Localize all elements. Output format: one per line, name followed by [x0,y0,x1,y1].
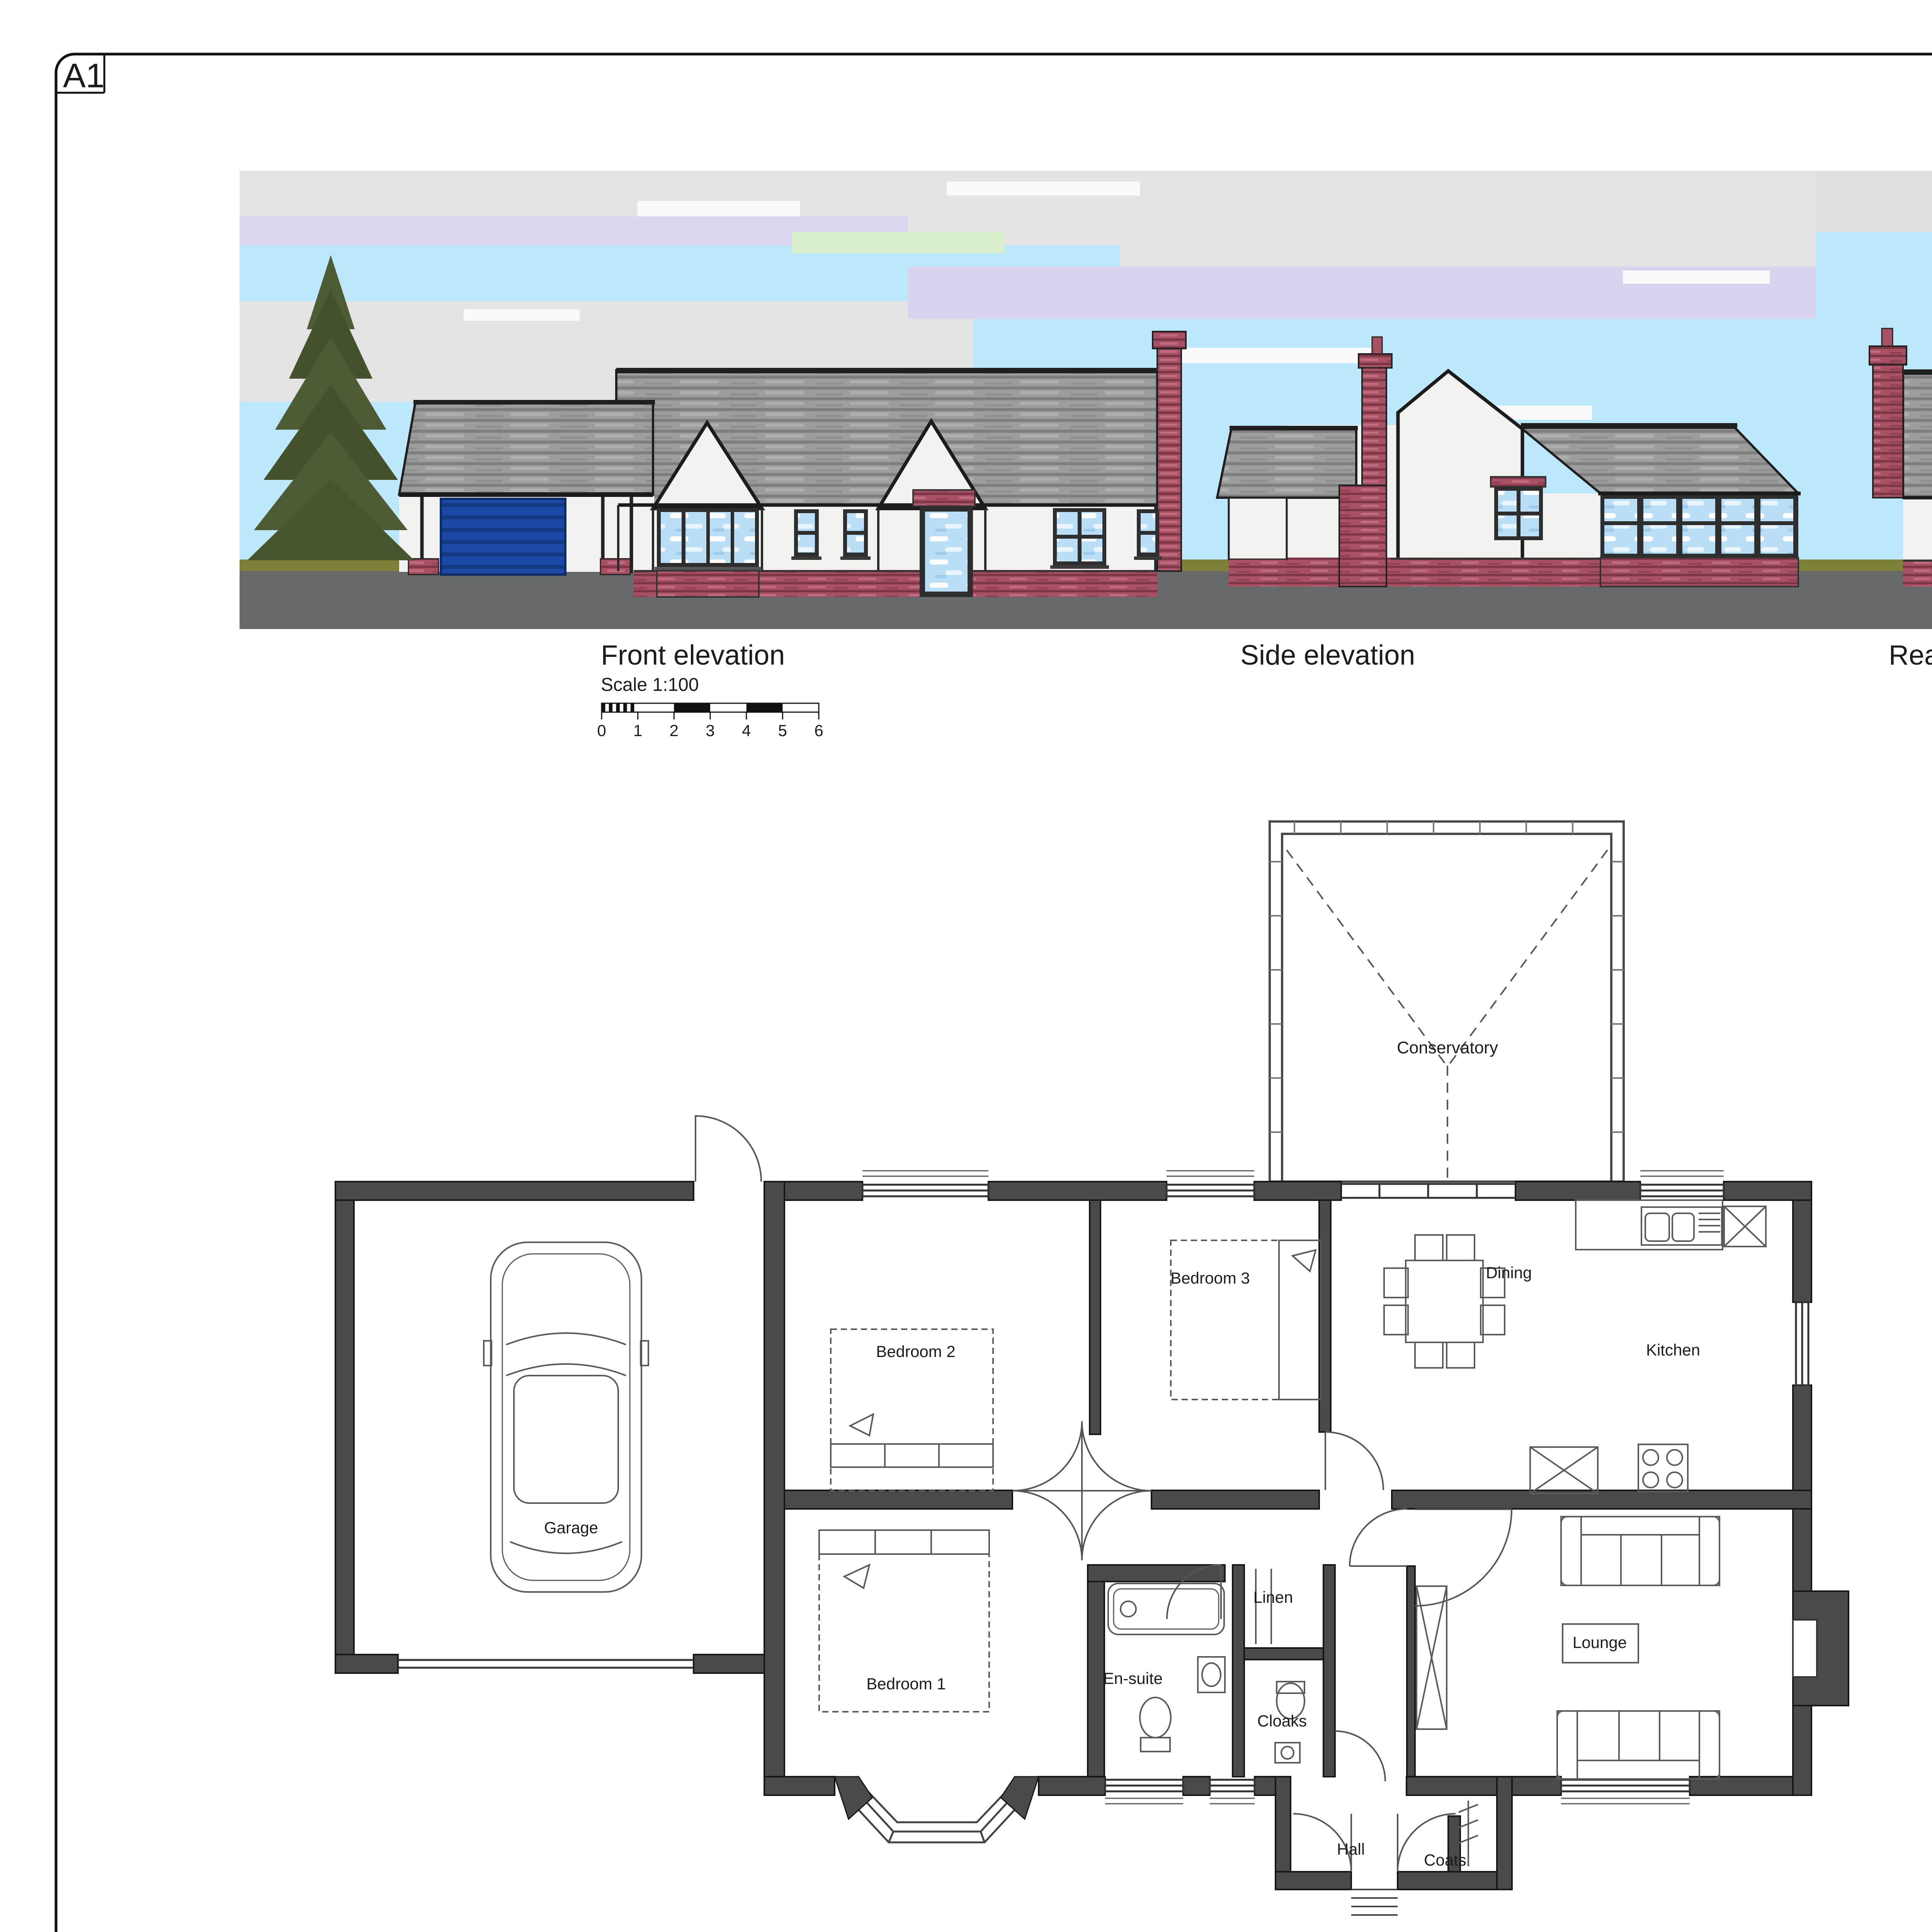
svg-text:Bedroom 2: Bedroom 2 [876,1342,955,1361]
svg-text:6: 6 [814,721,823,740]
svg-text:0: 0 [597,721,606,740]
svg-text:Front elevation: Front elevation [601,640,785,671]
svg-text:Scale 1:100: Scale 1:100 [601,675,699,695]
svg-text:Rear elevation: Rear elevation [1889,640,1932,671]
svg-text:Bedroom 3: Bedroom 3 [1170,1269,1250,1287]
svg-text:Conservatory: Conservatory [1397,1038,1498,1057]
svg-text:4: 4 [742,721,751,740]
svg-text:3: 3 [706,721,714,740]
svg-text:Cloaks: Cloaks [1257,1712,1307,1730]
svg-text:Bedroom 1: Bedroom 1 [866,1675,946,1693]
svg-text:Linen: Linen [1253,1588,1293,1606]
svg-text:1: 1 [633,721,642,740]
svg-text:5: 5 [778,721,787,740]
svg-text:En-suite: En-suite [1103,1669,1163,1687]
svg-text:Dining: Dining [1486,1264,1532,1282]
svg-text:Garage: Garage [544,1519,598,1537]
svg-text:Side elevation: Side elevation [1240,640,1415,671]
svg-text:Lounge: Lounge [1573,1633,1627,1651]
svg-text:Coats: Coats [1424,1851,1466,1869]
svg-text:Hall: Hall [1337,1840,1365,1858]
svg-text:A1: A1 [63,56,105,95]
svg-text:Kitchen: Kitchen [1646,1341,1700,1359]
svg-text:2: 2 [670,721,679,740]
